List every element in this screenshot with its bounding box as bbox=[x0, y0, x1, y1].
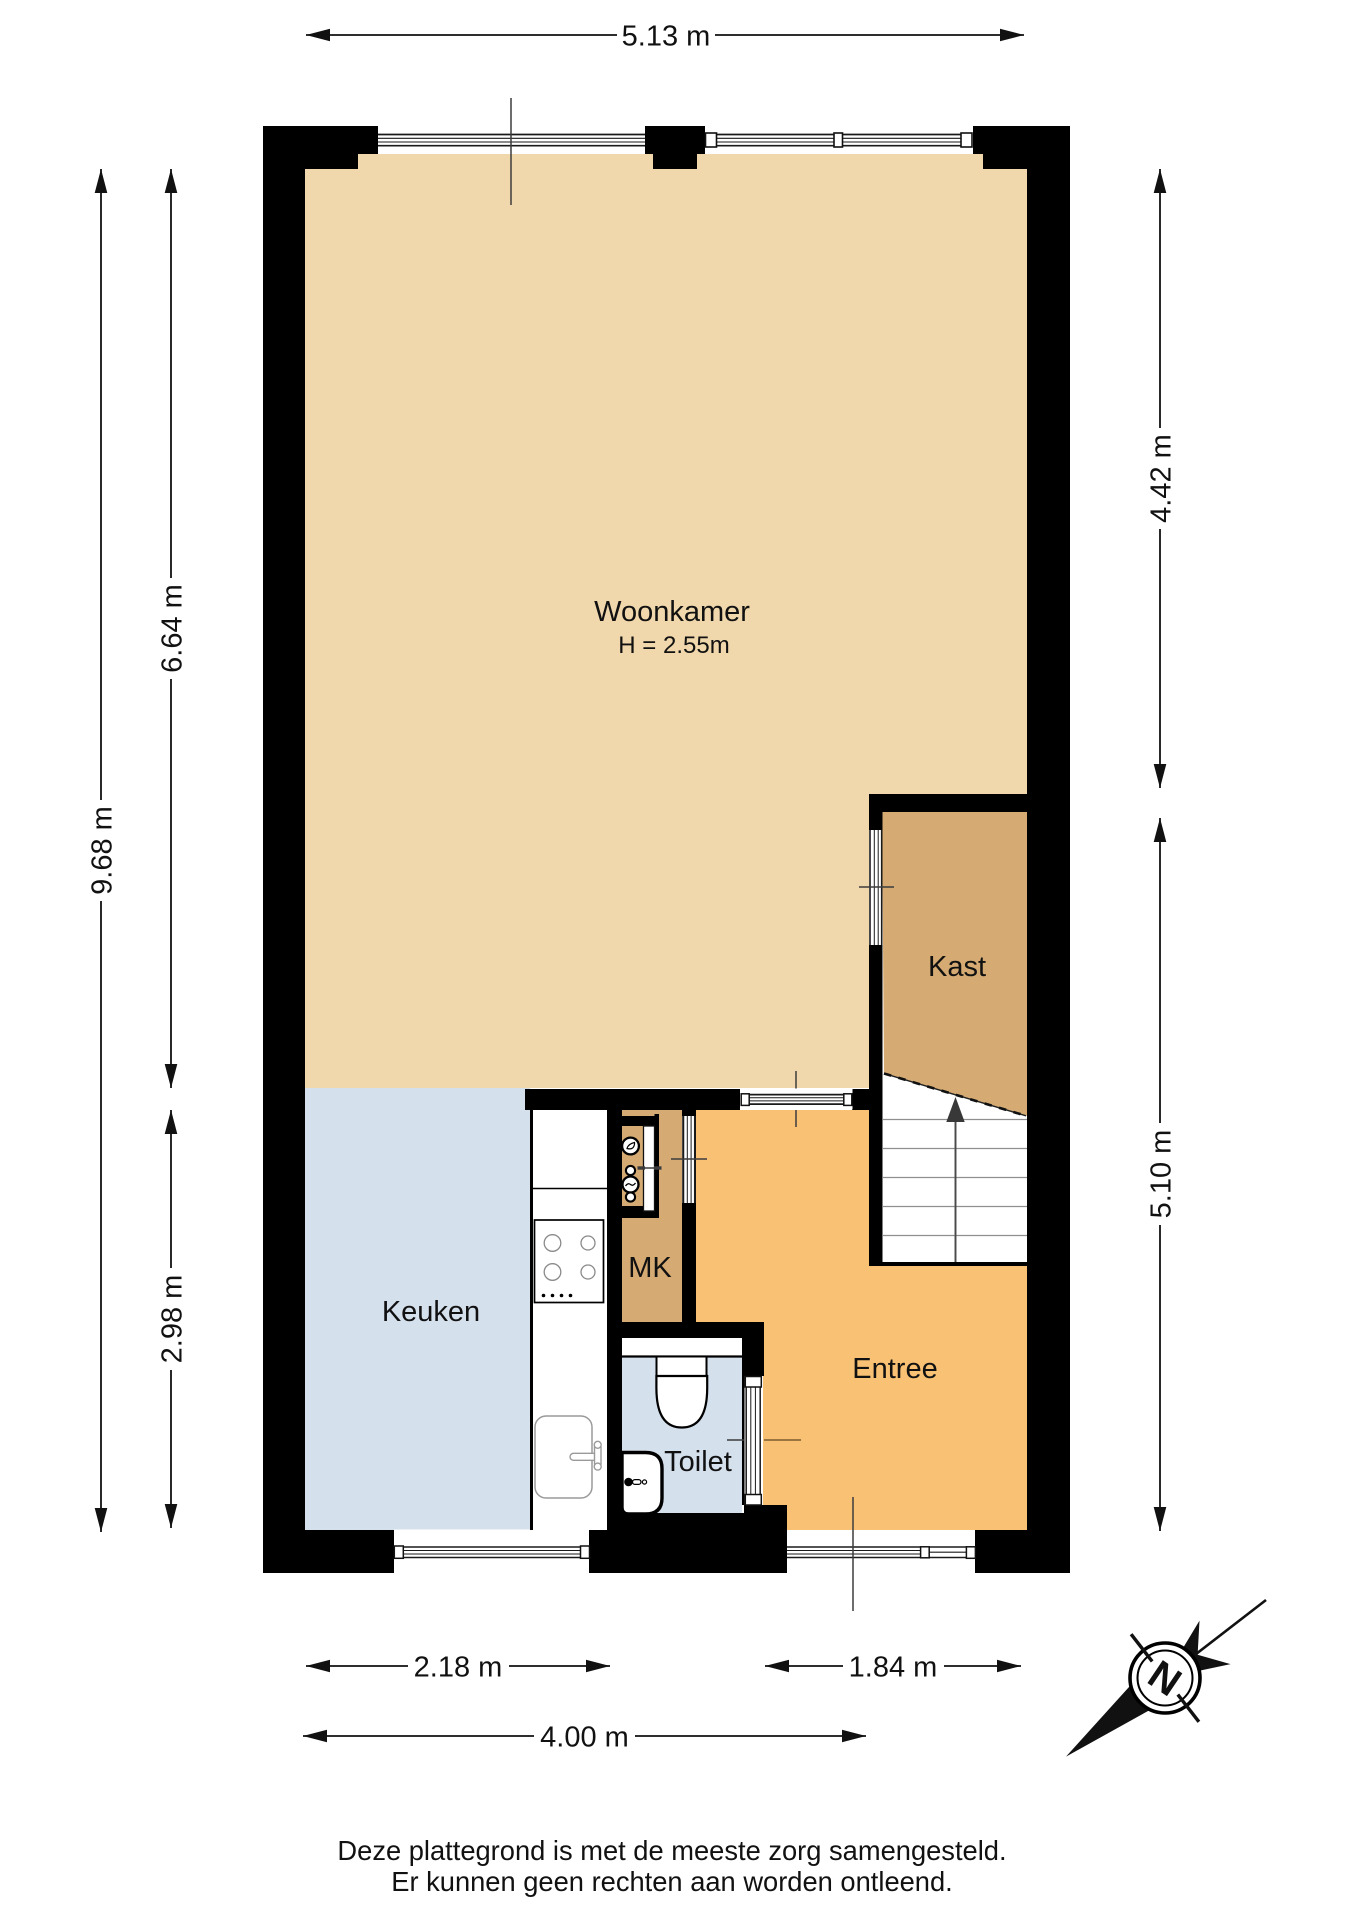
svg-text:H = 2.55m: H = 2.55m bbox=[618, 632, 729, 659]
svg-text:5.10 m: 5.10 m bbox=[1146, 1130, 1178, 1219]
svg-text:2.18 m: 2.18 m bbox=[414, 1652, 503, 1684]
svg-text:Kast: Kast bbox=[928, 951, 986, 983]
svg-text:MK: MK bbox=[628, 1252, 672, 1284]
svg-text:6.64 m: 6.64 m bbox=[157, 584, 189, 673]
svg-text:4.42 m: 4.42 m bbox=[1146, 434, 1178, 523]
svg-text:Woonkamer: Woonkamer bbox=[594, 596, 750, 628]
svg-text:Deze plattegrond is met de mee: Deze plattegrond is met de meeste zorg s… bbox=[337, 1835, 1006, 1866]
svg-text:4.00 m: 4.00 m bbox=[540, 1722, 629, 1754]
svg-text:2.98 m: 2.98 m bbox=[157, 1275, 189, 1364]
svg-text:Keuken: Keuken bbox=[382, 1296, 480, 1328]
svg-text:9.68 m: 9.68 m bbox=[87, 806, 119, 895]
svg-text:Er kunnen geen rechten aan wor: Er kunnen geen rechten aan worden ontlee… bbox=[391, 1866, 953, 1897]
svg-text:1.84 m: 1.84 m bbox=[849, 1652, 938, 1684]
svg-text:Toilet: Toilet bbox=[664, 1446, 732, 1478]
svg-text:5.13 m: 5.13 m bbox=[622, 21, 711, 53]
svg-text:Entree: Entree bbox=[852, 1353, 937, 1385]
